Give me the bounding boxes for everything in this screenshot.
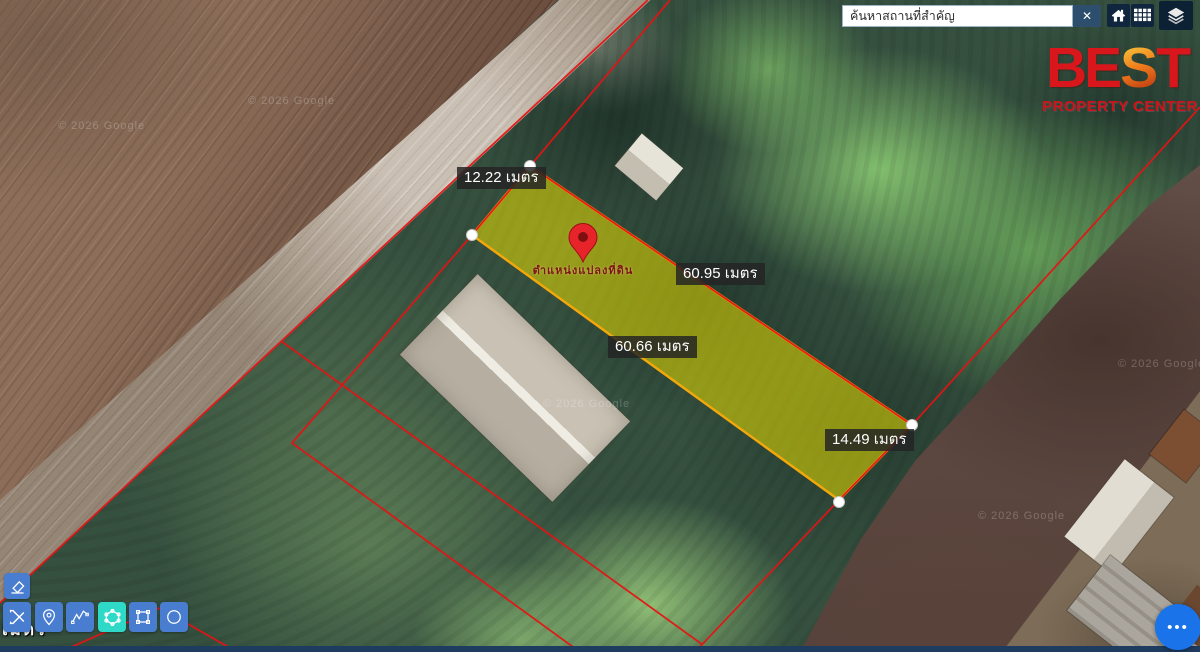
circle-tool-button[interactable]	[160, 602, 188, 632]
polyline-tool-button[interactable]	[66, 602, 94, 632]
vertex-handle[interactable]	[834, 497, 845, 508]
bottom-bar	[0, 646, 1200, 652]
pin-label: ตำแหน่งแปลงที่ดิน	[520, 261, 646, 279]
ellipsis-icon: •••	[1167, 619, 1189, 636]
eraser-icon	[8, 577, 27, 596]
logo-subtitle: PROPERTY CENTER	[1042, 99, 1192, 114]
measurement-label: 60.95 เมตร	[676, 263, 765, 285]
pin-tool-icon	[39, 607, 59, 627]
rectangle-icon	[133, 607, 153, 627]
parcel-overlay	[0, 0, 1200, 652]
polyline-icon	[70, 607, 90, 627]
circle-icon	[164, 607, 184, 627]
clear-search-button[interactable]: ✕	[1073, 5, 1101, 27]
polygon-tool-button-selected[interactable]	[98, 602, 126, 632]
layers-icon	[1165, 5, 1187, 27]
rectangle-tool-button[interactable]	[129, 602, 157, 632]
grid-icon	[1134, 8, 1151, 23]
best-property-center-logo: BEST PROPERTY CENTER	[1042, 40, 1192, 114]
more-options-fab[interactable]: •••	[1155, 604, 1200, 650]
measure-tool-button[interactable]	[3, 602, 31, 632]
search-input[interactable]	[842, 5, 1073, 27]
vertex-handle[interactable]	[467, 230, 478, 241]
home-button[interactable]	[1107, 4, 1130, 27]
grid-view-button[interactable]	[1131, 4, 1154, 27]
polygon-icon	[102, 607, 123, 628]
measurement-label: 60.66 เมตร	[608, 336, 697, 358]
measurement-label: 14.49 เมตร	[825, 429, 914, 451]
map-application: © 2026 Google © 2026 Google © 2026 Googl…	[0, 0, 1200, 652]
close-icon: ✕	[1082, 9, 1092, 23]
logo-word: BEST	[1042, 40, 1192, 97]
search-bar: ✕	[842, 5, 1101, 27]
eraser-tool-button[interactable]	[4, 573, 30, 599]
measure-cross-icon	[7, 607, 27, 627]
layers-button[interactable]	[1159, 1, 1193, 30]
logo-gold-s: S	[1119, 36, 1156, 100]
pin-tool-button[interactable]	[35, 602, 63, 632]
home-icon	[1110, 7, 1127, 24]
measurement-label: 12.22 เมตร	[457, 167, 546, 189]
